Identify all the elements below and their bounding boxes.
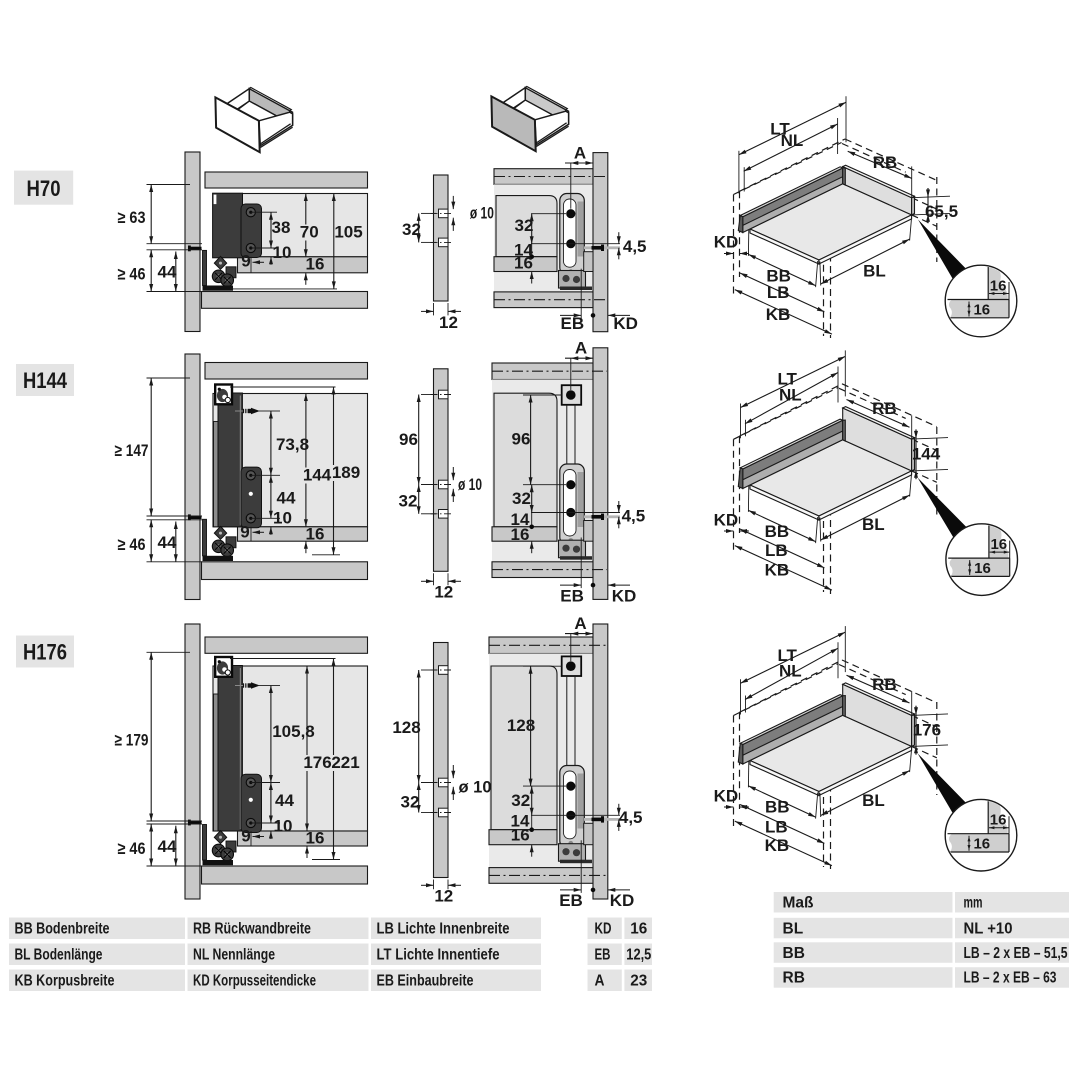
svg-text:BL: BL [862, 791, 885, 810]
svg-text:KD: KD [610, 891, 635, 910]
svg-text:10: 10 [273, 509, 292, 528]
svg-text:≥ 179: ≥ 179 [115, 731, 149, 750]
svg-text:128: 128 [507, 716, 535, 735]
svg-text:KD: KD [612, 587, 637, 606]
svg-text:23: 23 [630, 973, 647, 990]
svg-text:96: 96 [512, 430, 531, 449]
svg-text:RB: RB [873, 153, 898, 172]
svg-text:≥ 63: ≥ 63 [118, 208, 146, 227]
svg-text:EB: EB [559, 891, 583, 910]
svg-text:16: 16 [514, 254, 533, 273]
svg-text:16: 16 [990, 812, 1007, 829]
svg-text:16: 16 [306, 829, 325, 848]
svg-text:Maß: Maß [783, 895, 815, 912]
svg-text:32: 32 [515, 216, 534, 235]
svg-text:128: 128 [392, 718, 420, 737]
svg-text:KD: KD [613, 314, 638, 333]
svg-text:NL: NL [779, 385, 802, 404]
svg-text:H70: H70 [27, 176, 61, 201]
svg-text:44: 44 [158, 533, 177, 552]
svg-text:BB: BB [765, 797, 790, 816]
svg-text:65,5: 65,5 [925, 202, 958, 221]
svg-text:BL: BL [863, 262, 886, 281]
svg-text:NL: NL [781, 131, 804, 150]
svg-text:176: 176 [303, 753, 331, 772]
svg-text:BB: BB [765, 522, 790, 541]
svg-text:LT Lichte Innentiefe: LT Lichte Innentiefe [377, 947, 500, 964]
svg-text:38: 38 [272, 218, 291, 237]
svg-text:≥ 46: ≥ 46 [118, 535, 146, 554]
svg-text:9: 9 [241, 827, 250, 846]
svg-text:LB – 2 x EB – 63: LB – 2 x EB – 63 [964, 970, 1057, 987]
svg-text:12: 12 [434, 583, 453, 602]
svg-text:4,5: 4,5 [623, 237, 647, 256]
svg-text:A: A [575, 339, 587, 358]
svg-text:KD: KD [714, 510, 739, 529]
svg-text:RB: RB [783, 970, 805, 987]
svg-text:16: 16 [973, 301, 990, 318]
svg-text:BL: BL [862, 515, 885, 534]
svg-text:10: 10 [273, 243, 292, 262]
svg-text:96: 96 [399, 430, 418, 449]
svg-text:144: 144 [912, 445, 941, 464]
svg-text:ø 10: ø 10 [470, 203, 494, 222]
svg-text:144: 144 [303, 466, 332, 485]
svg-text:16: 16 [990, 536, 1007, 553]
svg-text:KD: KD [595, 921, 612, 938]
svg-text:LB: LB [765, 817, 788, 836]
svg-text:12: 12 [439, 313, 458, 332]
svg-text:NL: NL [779, 661, 802, 680]
svg-text:KD: KD [714, 786, 739, 805]
svg-text:mm: mm [964, 895, 983, 912]
svg-text:EB: EB [560, 314, 584, 333]
svg-text:≥ 147: ≥ 147 [115, 441, 149, 460]
svg-text:16: 16 [306, 524, 325, 543]
svg-text:16: 16 [306, 254, 325, 273]
svg-text:H176: H176 [23, 640, 67, 665]
svg-text:ø 10: ø 10 [458, 475, 482, 494]
svg-text:189: 189 [332, 463, 360, 482]
svg-text:44: 44 [275, 791, 294, 810]
svg-text:16: 16 [511, 525, 530, 544]
svg-text:RB: RB [872, 675, 897, 694]
svg-text:12: 12 [434, 887, 453, 906]
svg-text:LB Lichte Innenbreite: LB Lichte Innenbreite [377, 921, 510, 938]
svg-text:KB Korpusbreite: KB Korpusbreite [15, 973, 115, 990]
svg-text:LB: LB [765, 541, 788, 560]
svg-text:LB: LB [767, 283, 790, 302]
svg-text:EB: EB [560, 587, 584, 606]
svg-text:BL: BL [783, 920, 804, 937]
svg-text:12,5: 12,5 [626, 947, 651, 964]
svg-text:32: 32 [512, 489, 531, 508]
svg-text:KB: KB [765, 561, 790, 580]
svg-text:221: 221 [331, 753, 359, 772]
svg-text:9: 9 [241, 252, 250, 271]
svg-text:32: 32 [401, 793, 420, 812]
svg-text:32: 32 [402, 220, 421, 239]
svg-text:73,8: 73,8 [276, 435, 309, 454]
svg-text:A: A [574, 144, 586, 163]
svg-text:EB Einbaubreite: EB Einbaubreite [377, 973, 474, 990]
svg-text:16: 16 [630, 921, 647, 938]
svg-text:BL Bodenlänge: BL Bodenlänge [15, 947, 103, 964]
svg-text:10: 10 [274, 817, 293, 836]
svg-text:105,8: 105,8 [272, 722, 315, 741]
svg-text:A: A [595, 973, 605, 990]
svg-text:KD: KD [714, 233, 739, 252]
svg-text:EB: EB [595, 947, 611, 964]
svg-text:16: 16 [974, 560, 991, 577]
svg-text:176: 176 [913, 721, 941, 740]
svg-text:4,5: 4,5 [619, 808, 643, 827]
svg-text:105: 105 [334, 223, 362, 242]
svg-text:BB: BB [783, 945, 805, 962]
svg-text:NL +10: NL +10 [964, 920, 1013, 937]
svg-text:H144: H144 [23, 368, 68, 393]
svg-text:RB Rückwandbreite: RB Rückwandbreite [193, 921, 311, 938]
svg-text:16: 16 [511, 826, 530, 845]
svg-text:RB: RB [872, 399, 897, 418]
svg-text:BB Bodenbreite: BB Bodenbreite [15, 921, 110, 938]
svg-text:16: 16 [973, 836, 990, 853]
svg-text:16: 16 [990, 278, 1007, 295]
svg-text:4,5: 4,5 [622, 506, 646, 525]
svg-text:≥ 46: ≥ 46 [118, 265, 146, 284]
svg-text:KB: KB [766, 305, 791, 324]
svg-text:32: 32 [511, 791, 530, 810]
svg-text:44: 44 [158, 263, 177, 282]
svg-text:44: 44 [277, 489, 296, 508]
svg-text:LB – 2 x EB – 51,5: LB – 2 x EB – 51,5 [964, 945, 1068, 962]
svg-text:NL Nennlänge: NL Nennlänge [193, 947, 275, 964]
svg-text:≥ 46: ≥ 46 [118, 839, 146, 858]
svg-text:70: 70 [300, 223, 319, 242]
svg-text:KB: KB [765, 836, 790, 855]
svg-text:9: 9 [240, 523, 249, 542]
svg-text:KD Korpusseitendicke: KD Korpusseitendicke [193, 973, 316, 990]
svg-text:32: 32 [399, 492, 418, 511]
svg-text:ø 10: ø 10 [459, 777, 492, 796]
svg-text:44: 44 [158, 837, 177, 856]
svg-text:A: A [574, 614, 586, 633]
